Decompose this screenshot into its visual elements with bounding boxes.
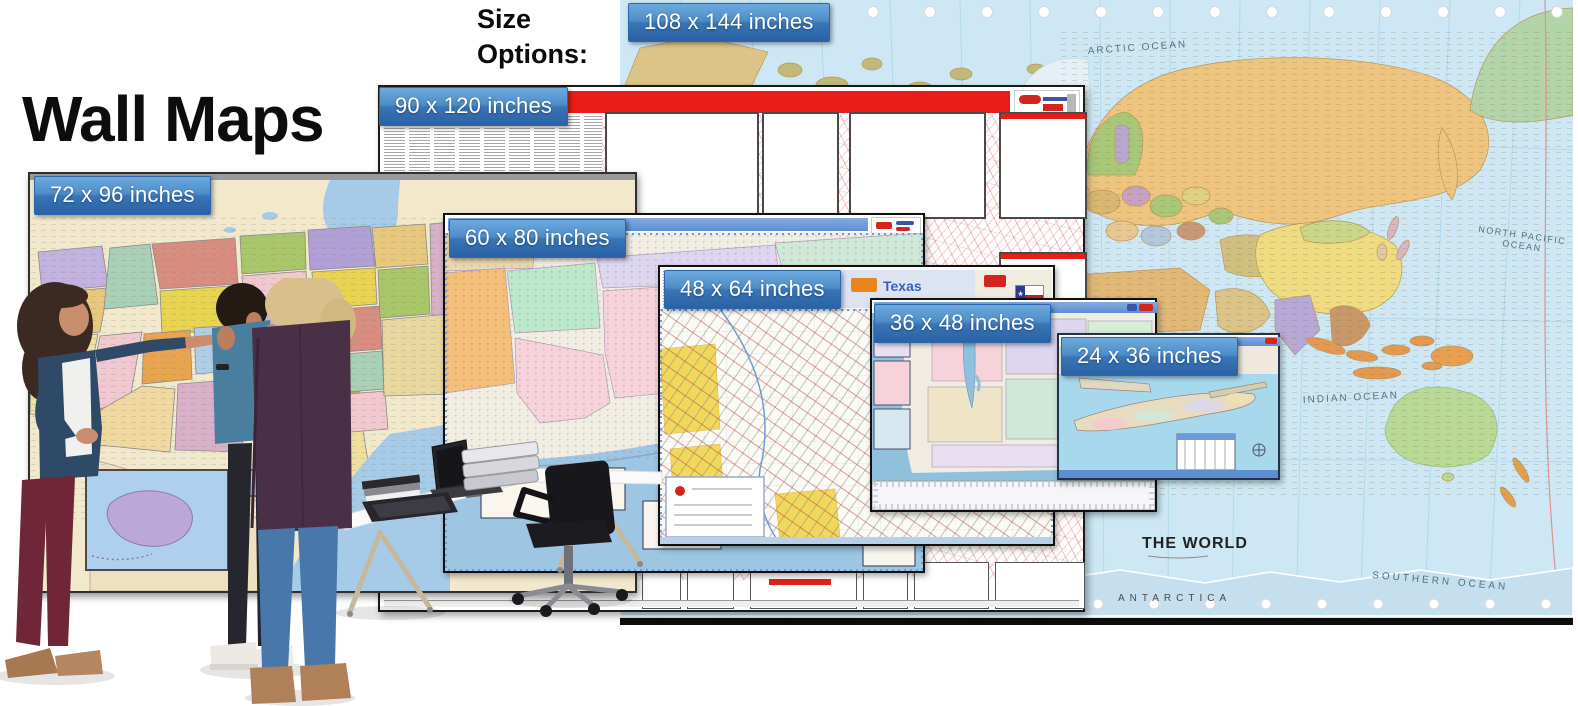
size-option-60x80[interactable]: 60 x 80 inches [449,219,626,258]
world-map-title: THE WORLD [1142,535,1248,552]
size-option-72x96[interactable]: 72 x 96 inches [34,176,211,215]
wall-maps-banner: ARCTIC OCEAN NORTH PACIFIC OCEAN INDIAN … [0,0,1578,706]
map-bottom-strip [1059,470,1278,478]
size-options-heading: Size Options: [477,2,605,72]
person-woman-left [5,282,228,678]
size-option-48x64[interactable]: 48 x 64 inches [664,270,841,309]
title-logo-mark [851,278,877,292]
map-data-table [1177,434,1235,470]
size-option-24x36[interactable]: 24 x 36 inches [1061,337,1238,376]
size-option-36x48[interactable]: 36 x 48 inches [874,304,1051,343]
antarctica-label: ANTARCTICA [1118,593,1231,604]
zip-inset-box [762,112,839,219]
map-legend-box [666,477,764,537]
person-woman-right [250,278,356,704]
world-map-subtitle-line [1148,556,1208,558]
page-title: Wall Maps [22,82,324,156]
texas-map-title: Texas [883,278,922,294]
size-option-108x144[interactable]: 108 x 144 inches [628,3,830,42]
size-option-90x120[interactable]: 90 x 120 inches [379,87,568,126]
zip-inset-box [849,112,986,219]
world-map-bottom-border [620,618,1573,625]
map-publisher-logo-icon [984,275,1006,287]
zip-inset-box [999,112,1087,219]
binder-stack [462,441,540,490]
office-photo-overlay [0,278,680,706]
